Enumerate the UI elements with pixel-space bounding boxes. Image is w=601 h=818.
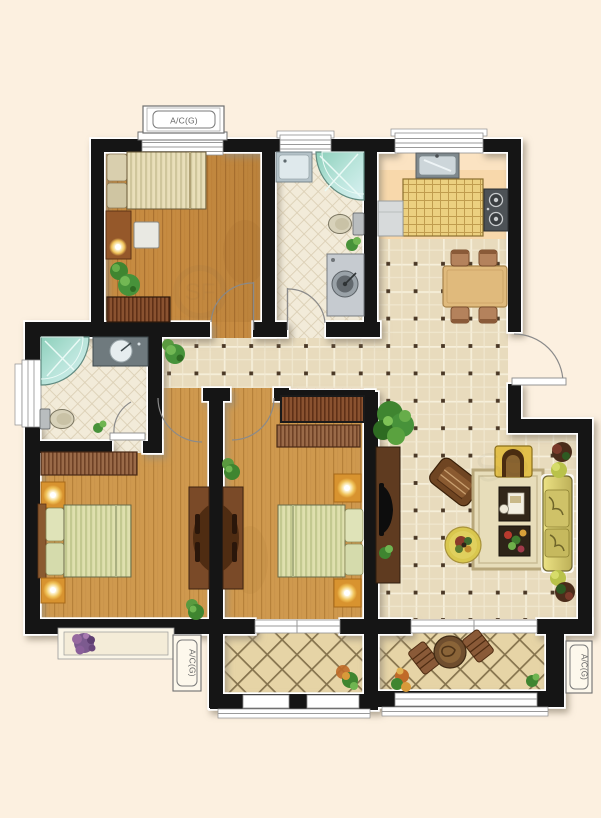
svg-text:SF: SF	[185, 279, 216, 306]
svg-text:A/C(G): A/C(G)	[188, 649, 198, 677]
svg-text:A/C(G): A/C(G)	[580, 654, 589, 680]
svg-text:A/C(G): A/C(G)	[170, 116, 198, 126]
